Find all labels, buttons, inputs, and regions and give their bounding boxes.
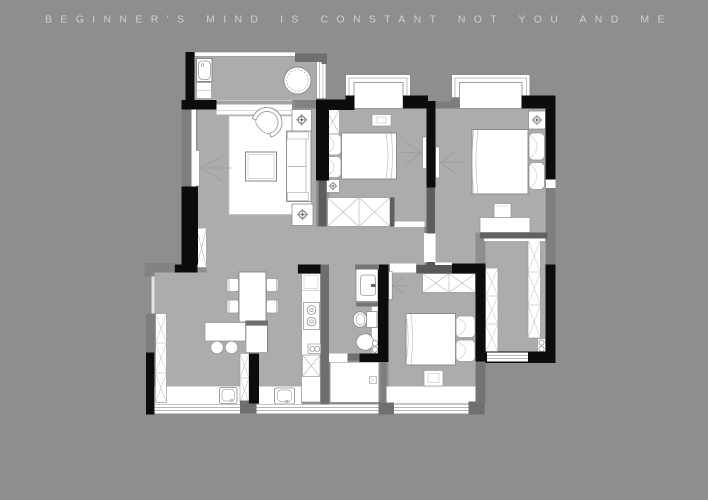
svg-text:BEGINNER'S MIND IS CONSTANT NO: BEGINNER'S MIND IS CONSTANT NOT YOU AND …: [45, 14, 673, 26]
